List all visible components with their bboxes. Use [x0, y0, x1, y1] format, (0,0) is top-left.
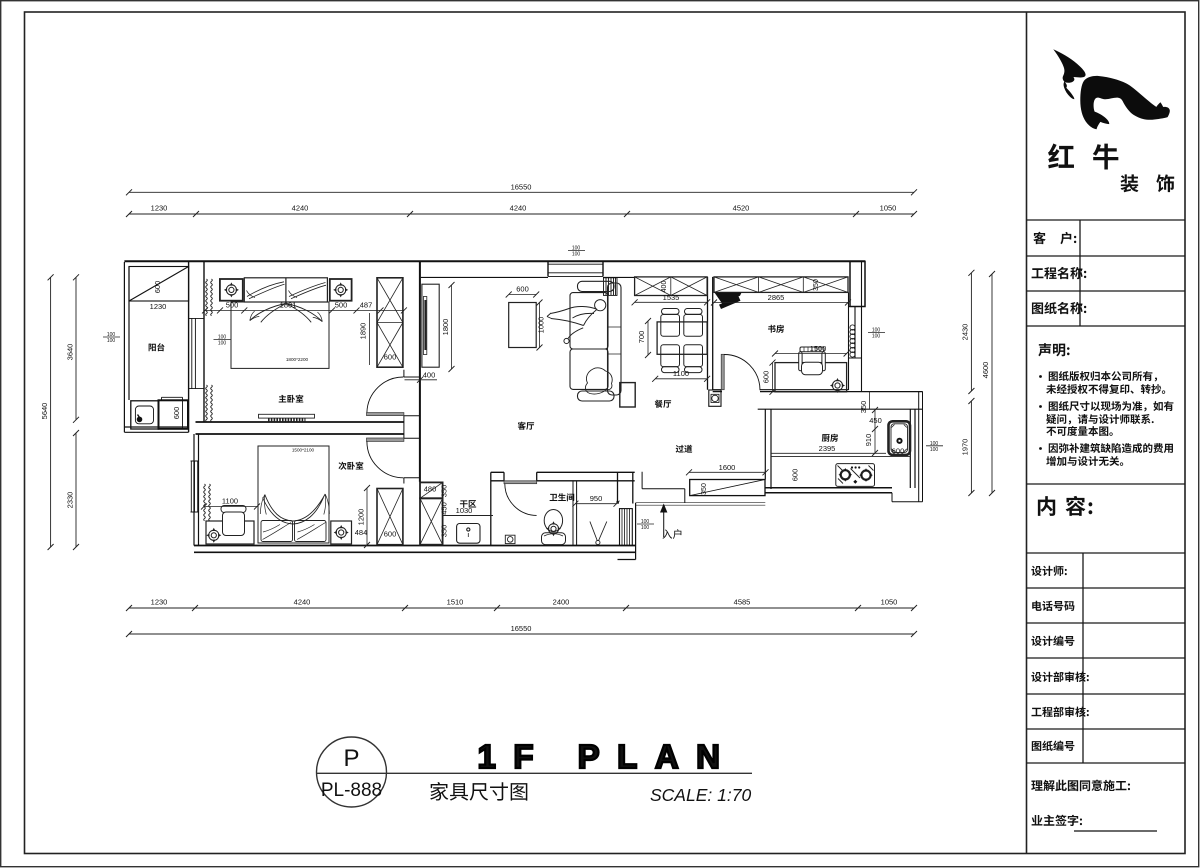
svg-text:4520: 4520: [733, 204, 750, 213]
svg-text:1500*2100: 1500*2100: [292, 448, 315, 453]
svg-text:600: 600: [516, 285, 529, 294]
svg-text:1500: 1500: [810, 344, 827, 353]
svg-text:1801: 1801: [280, 301, 297, 310]
svg-text:500: 500: [335, 301, 348, 310]
svg-text:100: 100: [641, 525, 650, 531]
svg-text:SCALE: 1:70: SCALE: 1:70: [650, 785, 751, 805]
svg-text:1800: 1800: [441, 319, 450, 336]
svg-text:16550: 16550: [511, 183, 532, 192]
svg-text:1230: 1230: [150, 302, 167, 311]
svg-text:4240: 4240: [294, 598, 311, 607]
svg-text:1230: 1230: [151, 598, 168, 607]
svg-text:1800*2200: 1800*2200: [286, 357, 309, 362]
svg-text:P: P: [343, 745, 359, 772]
svg-text:100: 100: [930, 447, 939, 453]
svg-text:500: 500: [226, 301, 239, 310]
svg-text:1050: 1050: [881, 598, 898, 607]
svg-text:700: 700: [637, 331, 646, 344]
svg-text:1970: 1970: [961, 439, 970, 456]
svg-text:1510: 1510: [447, 598, 464, 607]
svg-text:600: 600: [762, 371, 771, 384]
svg-text:2400: 2400: [553, 598, 570, 607]
svg-text:100: 100: [572, 252, 581, 258]
svg-text:4585: 4585: [734, 598, 751, 607]
svg-text:400: 400: [661, 281, 668, 293]
svg-text:1100: 1100: [222, 497, 238, 506]
svg-text:2865: 2865: [768, 293, 785, 302]
svg-text:100: 100: [107, 338, 116, 344]
svg-text:100: 100: [872, 334, 881, 340]
svg-text:600: 600: [892, 447, 905, 456]
svg-text:600: 600: [384, 353, 397, 362]
svg-text:480: 480: [424, 485, 437, 494]
svg-text:4240: 4240: [292, 204, 309, 213]
svg-text:2330: 2330: [66, 492, 75, 509]
svg-text:600: 600: [153, 281, 162, 294]
svg-text:2395: 2395: [819, 444, 836, 453]
svg-text:1890: 1890: [359, 323, 368, 340]
svg-text:5640: 5640: [40, 403, 49, 420]
svg-text:487: 487: [360, 301, 373, 310]
svg-text:1F PLAN: 1F PLAN: [477, 738, 737, 775]
svg-text:1000: 1000: [537, 317, 546, 334]
svg-text:350: 350: [440, 485, 449, 498]
svg-text:4240: 4240: [510, 204, 527, 213]
svg-text:600: 600: [384, 530, 397, 539]
svg-text:450: 450: [440, 502, 449, 515]
svg-text:600: 600: [791, 469, 800, 482]
svg-text:350: 350: [859, 401, 868, 414]
svg-text:1535: 1535: [663, 293, 680, 302]
svg-text:910: 910: [864, 434, 873, 447]
svg-text:1100: 1100: [673, 369, 689, 378]
svg-text:16550: 16550: [511, 624, 532, 633]
svg-text:600: 600: [172, 407, 181, 420]
svg-text:100: 100: [218, 341, 227, 347]
svg-text:4600: 4600: [981, 362, 990, 379]
svg-text:950: 950: [590, 494, 603, 503]
svg-text:3640: 3640: [66, 344, 75, 361]
svg-text:1230: 1230: [151, 204, 168, 213]
svg-text:PL-888: PL-888: [321, 780, 382, 801]
svg-text:2430: 2430: [961, 324, 970, 341]
svg-text:450: 450: [869, 416, 882, 425]
svg-text:400: 400: [423, 371, 436, 380]
svg-text:484: 484: [355, 528, 368, 537]
svg-text:1050: 1050: [880, 204, 897, 213]
svg-text:350: 350: [440, 525, 449, 538]
svg-text:1200: 1200: [357, 509, 366, 526]
svg-text:350: 350: [701, 483, 708, 495]
svg-text:350: 350: [813, 279, 820, 291]
svg-text:1600: 1600: [719, 463, 736, 472]
